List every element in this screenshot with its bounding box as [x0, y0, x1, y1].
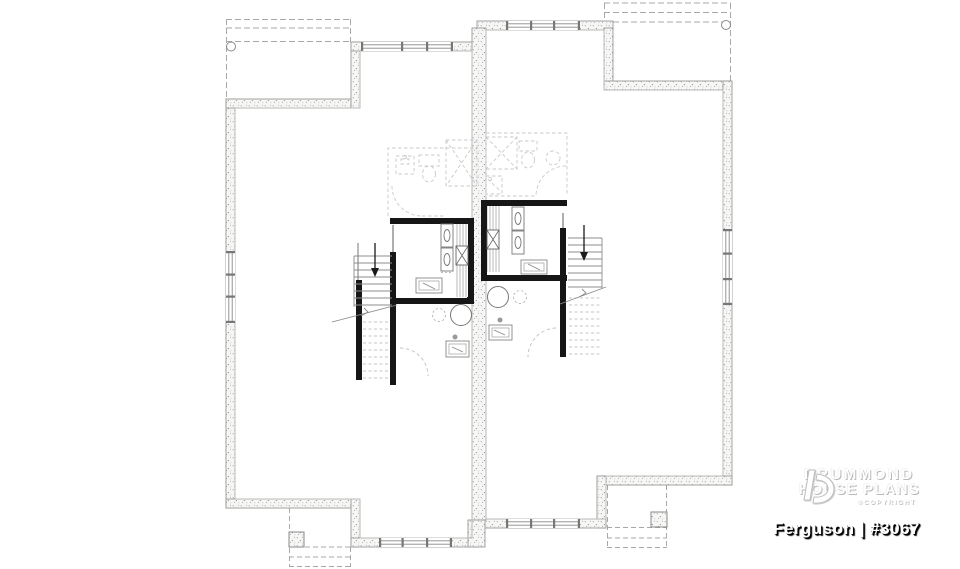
furnace-icon — [416, 278, 442, 293]
fixtures-right-unit — [488, 287, 557, 358]
cabinet-icon — [512, 231, 524, 254]
drain-icon — [433, 309, 446, 322]
upper-floor-overlay-right — [486, 133, 567, 196]
water-heater-icon — [488, 287, 509, 308]
stairs-right-unit — [560, 225, 606, 354]
foundation-walls-right-unit — [477, 21, 732, 528]
interior-outline-right-unit — [486, 30, 723, 519]
stoop-pier-icon — [289, 532, 304, 547]
window-bottom-right-unit — [506, 519, 580, 528]
drummond-d-icon — [798, 467, 836, 507]
window-left-wall — [226, 251, 235, 323]
drain-icon — [514, 291, 527, 304]
deck-top-left — [226, 19, 351, 99]
mech-contents-left — [416, 224, 468, 297]
foundation-walls-left-unit — [226, 42, 480, 547]
fixtures-left-unit — [400, 305, 472, 377]
stoop-pier-icon — [651, 512, 667, 527]
window-right-wall — [723, 229, 732, 305]
deck-pier-icon — [227, 42, 236, 51]
electrical-panel-icon — [487, 230, 499, 249]
upper-floor-overlay-left — [388, 140, 478, 216]
mech-contents-right — [487, 206, 547, 274]
deck-pier-icon — [722, 21, 731, 30]
cabinet-icon — [441, 248, 453, 271]
furnace-icon — [521, 260, 547, 274]
window-bottom-left-unit — [379, 538, 452, 547]
window-top-right-unit — [506, 21, 580, 30]
stairs-left-unit — [332, 243, 397, 378]
plan-name-label: Ferguson | #3067 — [773, 519, 920, 539]
cabinet-icon — [441, 224, 453, 247]
cabinet-icon — [512, 207, 524, 230]
window-top-left-unit — [361, 42, 453, 51]
drummond-logo: DRUMMOND HOUSE PLANS ©COPYRIGHT — [798, 467, 920, 507]
table-icon — [489, 325, 512, 340]
door-swing-arc — [528, 328, 556, 357]
floorplan-canvas: DRUMMOND HOUSE PLANS ©COPYRIGHT Ferguson… — [0, 0, 960, 569]
electrical-panel-icon — [456, 246, 468, 265]
interior-outline-left-unit — [235, 51, 472, 538]
door-swing-arc — [400, 348, 428, 376]
deck-top-right — [604, 3, 731, 81]
water-heater-icon — [451, 305, 472, 326]
logo-copyright: ©COPYRIGHT — [858, 500, 916, 507]
table-icon — [446, 341, 469, 357]
